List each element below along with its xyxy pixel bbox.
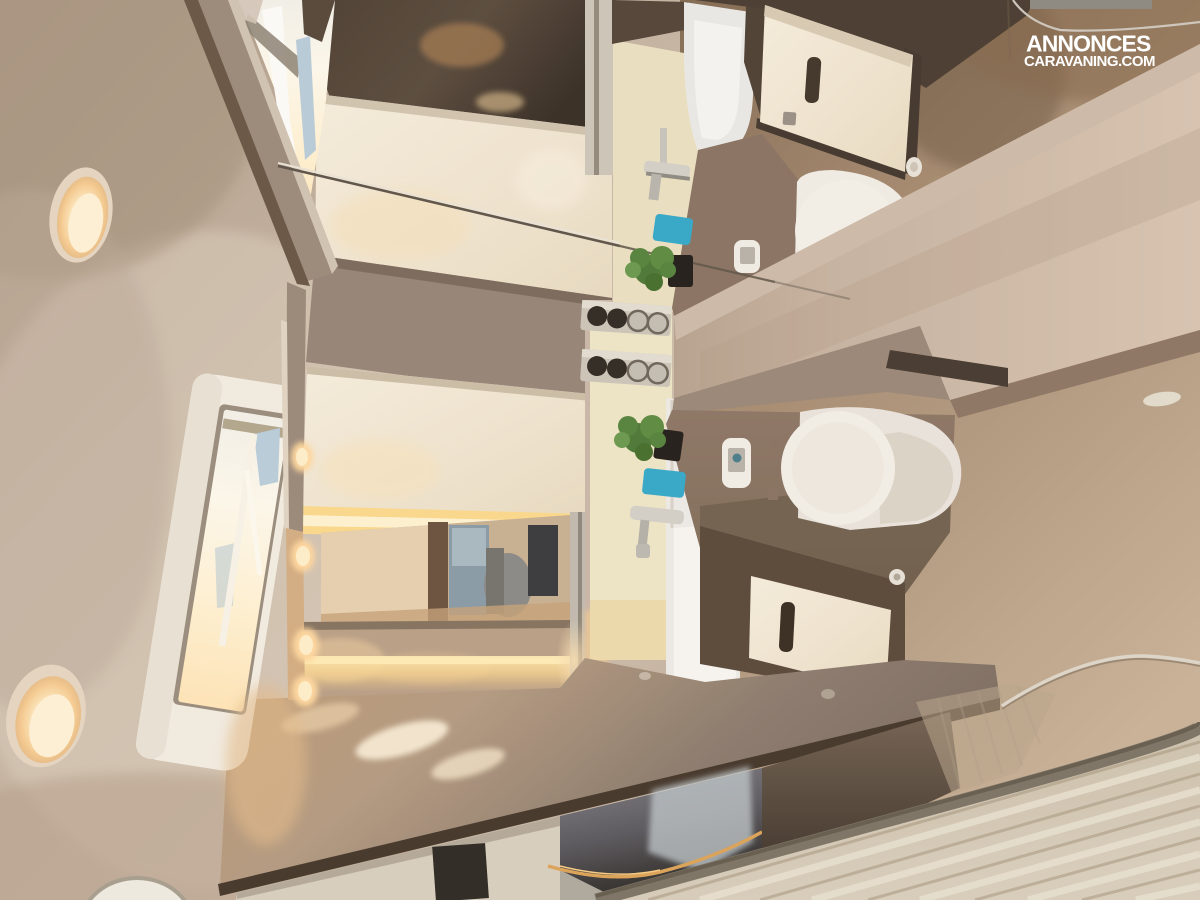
svg-text:CARAVANING.COM: CARAVANING.COM [1024,53,1155,70]
